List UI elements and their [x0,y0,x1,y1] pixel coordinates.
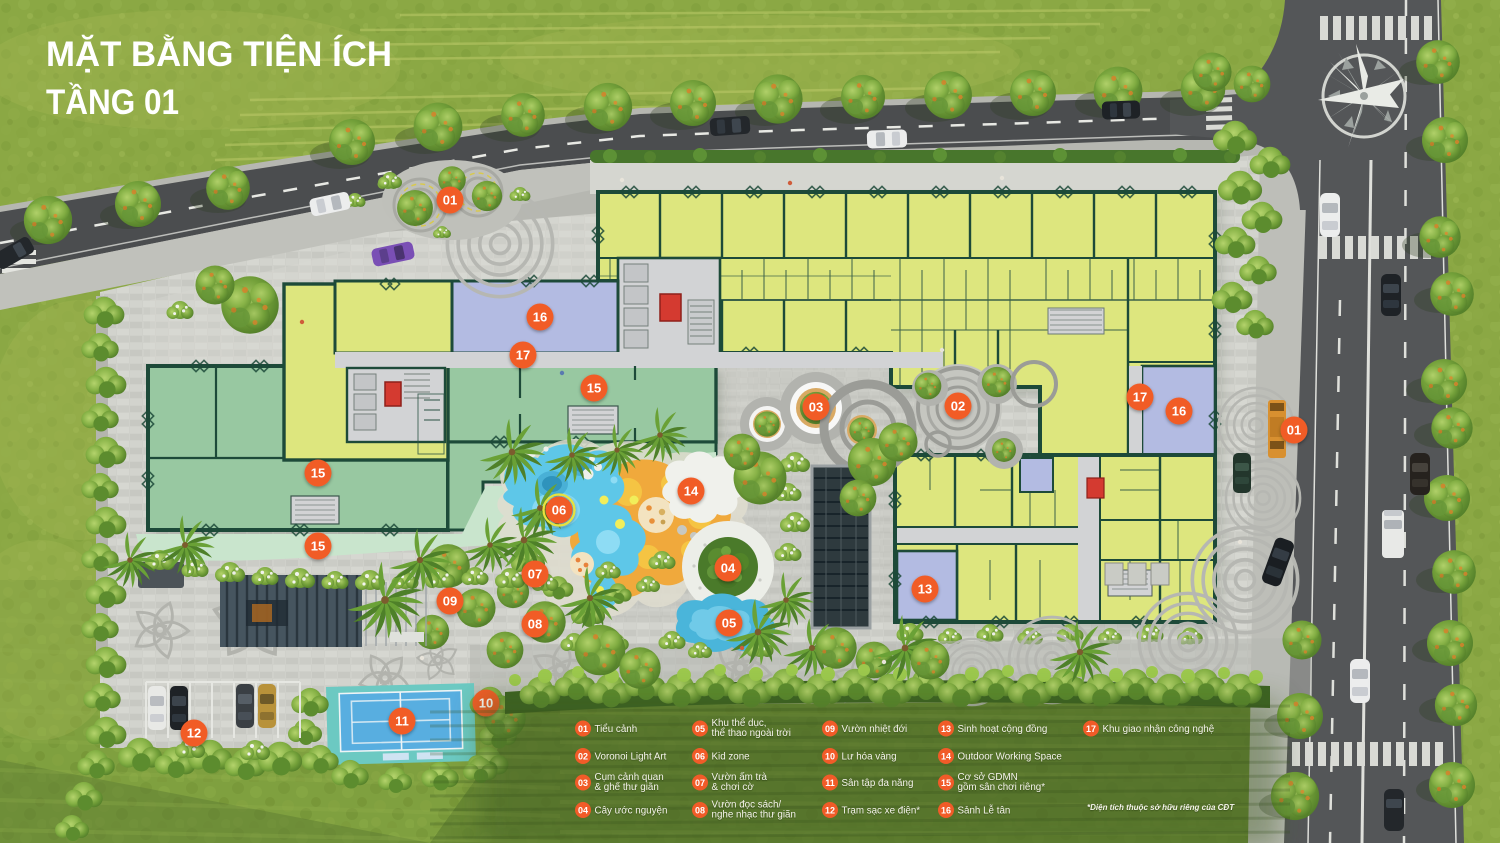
svg-text:Sinh hoạt cộng đồng: Sinh hoạt cộng đồng [958,724,1048,735]
svg-text:13: 13 [941,724,951,734]
svg-text:Tiểu cảnh: Tiểu cảnh [595,724,638,735]
svg-text:16: 16 [1172,404,1186,419]
svg-text:05: 05 [695,724,705,734]
svg-text:09: 09 [825,724,835,734]
svg-text:Kid zone: Kid zone [712,752,751,763]
svg-text:16: 16 [941,805,951,815]
svg-text:06: 06 [552,503,566,518]
svg-text:08: 08 [695,805,705,815]
svg-text:05: 05 [722,616,736,631]
svg-text:*Diện tích thuộc sở hữu riêng: *Diện tích thuộc sở hữu riêng của CĐT [1087,803,1235,812]
svg-text:14: 14 [684,484,699,499]
svg-text:15: 15 [587,381,601,396]
svg-text:01: 01 [1287,423,1301,438]
svg-text:TẦNG 01: TẦNG 01 [46,82,179,122]
svg-text:14: 14 [941,751,951,761]
svg-text:17: 17 [516,348,530,363]
svg-text:13: 13 [918,582,932,597]
svg-text:16: 16 [533,310,547,325]
svg-text:06: 06 [695,751,705,761]
svg-text:15: 15 [311,466,325,481]
svg-text:Cây ước nguyện: Cây ước nguyện [595,806,668,817]
svg-text:Sân tập đa năng: Sân tập đa năng [842,778,914,789]
svg-text:03: 03 [809,400,823,415]
svg-text:Khu giao nhận công nghệ: Khu giao nhận công nghệ [1103,724,1215,735]
svg-text:17: 17 [1086,724,1096,734]
svg-text:11: 11 [825,778,835,788]
svg-text:02: 02 [578,751,588,761]
svg-text:MẶT BẰNG TIỆN ÍCH: MẶT BẰNG TIỆN ÍCH [46,34,392,74]
svg-text:04: 04 [721,561,736,576]
svg-text:Sảnh Lễ tân: Sảnh Lễ tân [958,806,1011,817]
svg-text:Voronoi Light Art: Voronoi Light Art [595,752,667,763]
svg-text:09: 09 [443,594,457,609]
svg-text:Vườn nhiệt đới: Vườn nhiệt đới [842,724,908,735]
svg-text:11: 11 [395,714,409,729]
svg-text:12: 12 [825,805,835,815]
svg-text:17: 17 [1133,390,1147,405]
svg-text:15: 15 [311,539,325,554]
svg-text:12: 12 [187,726,201,741]
svg-text:04: 04 [578,805,588,815]
svg-text:01: 01 [578,724,588,734]
svg-text:02: 02 [951,399,965,414]
svg-text:10: 10 [825,751,835,761]
svg-text:Trạm sạc xe điện*: Trạm sạc xe điện* [842,806,921,817]
svg-text:03: 03 [578,778,588,788]
svg-text:Cụm cảnh quan& ghế thư giãn: Cụm cảnh quan& ghế thư giãn [595,772,664,793]
svg-text:07: 07 [695,778,705,788]
svg-text:15: 15 [941,778,951,788]
svg-text:Lư hóa vàng: Lư hóa vàng [842,752,897,763]
svg-text:08: 08 [528,617,542,632]
svg-text:07: 07 [528,567,542,582]
svg-text:01: 01 [443,193,457,208]
svg-text:Outdoor Working Space: Outdoor Working Space [958,752,1063,763]
